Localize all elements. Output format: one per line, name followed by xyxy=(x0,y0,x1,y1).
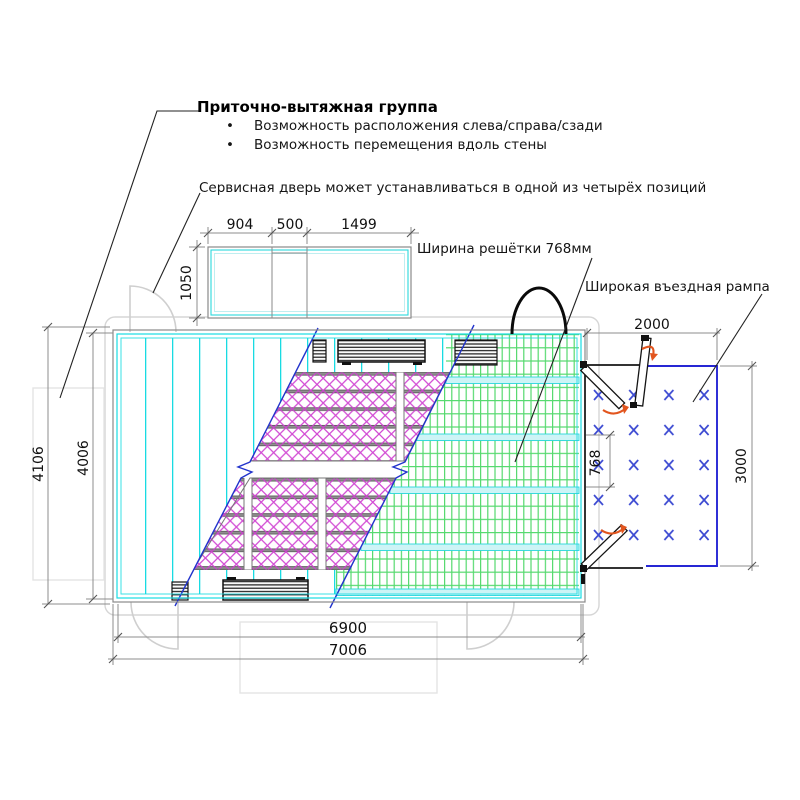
dim-plan-outer-length: 7006 xyxy=(329,641,367,659)
dim-ahu-left: 904 xyxy=(227,217,254,233)
ahu-unit-top-view xyxy=(208,247,411,318)
supply-group-bullet-2: • Возможность перемещения вдоль стены xyxy=(222,137,547,153)
supply-group-title: Приточно-вытяжная группа xyxy=(197,98,438,116)
dim-ahu-height: 1050 xyxy=(179,265,195,301)
service-door-swing-arc xyxy=(512,288,566,334)
bullet-icon: • xyxy=(222,118,254,134)
grille-width-note: Ширина решётки 768мм xyxy=(417,241,592,257)
dim-plan-inner-length: 6900 xyxy=(329,619,367,637)
supply-group-bullet-1: • Возможность расположения слева/справа/… xyxy=(222,118,603,134)
ramp-note: Широкая въездная рампа xyxy=(585,279,770,295)
dim-plan-outer-height: 4106 xyxy=(31,446,47,482)
bullet-1-text: Возможность расположения слева/справа/сз… xyxy=(254,118,603,134)
dim-plan-inner-height: 4006 xyxy=(76,440,92,476)
service-door-note: Сервисная дверь может устанавливаться в … xyxy=(199,180,706,196)
dim-ramp-grille-width: 768 xyxy=(588,450,604,477)
technical-drawing-page: 904 500 1499 1050 4106 4006 6900 7006 20… xyxy=(0,0,800,800)
dim-ahu-middle: 500 xyxy=(277,217,304,233)
cross-marks xyxy=(590,381,714,553)
bullet-icon: • xyxy=(222,137,254,153)
dim-ramp-width: 2000 xyxy=(634,317,670,333)
bullet-2-text: Возможность перемещения вдоль стены xyxy=(254,137,547,153)
dim-ramp-depth: 3000 xyxy=(734,448,750,484)
door-swing-arc xyxy=(467,602,514,649)
container-floor-plan xyxy=(113,288,585,608)
dim-ahu-right: 1499 xyxy=(341,217,377,233)
door-swing-arc xyxy=(131,602,178,649)
